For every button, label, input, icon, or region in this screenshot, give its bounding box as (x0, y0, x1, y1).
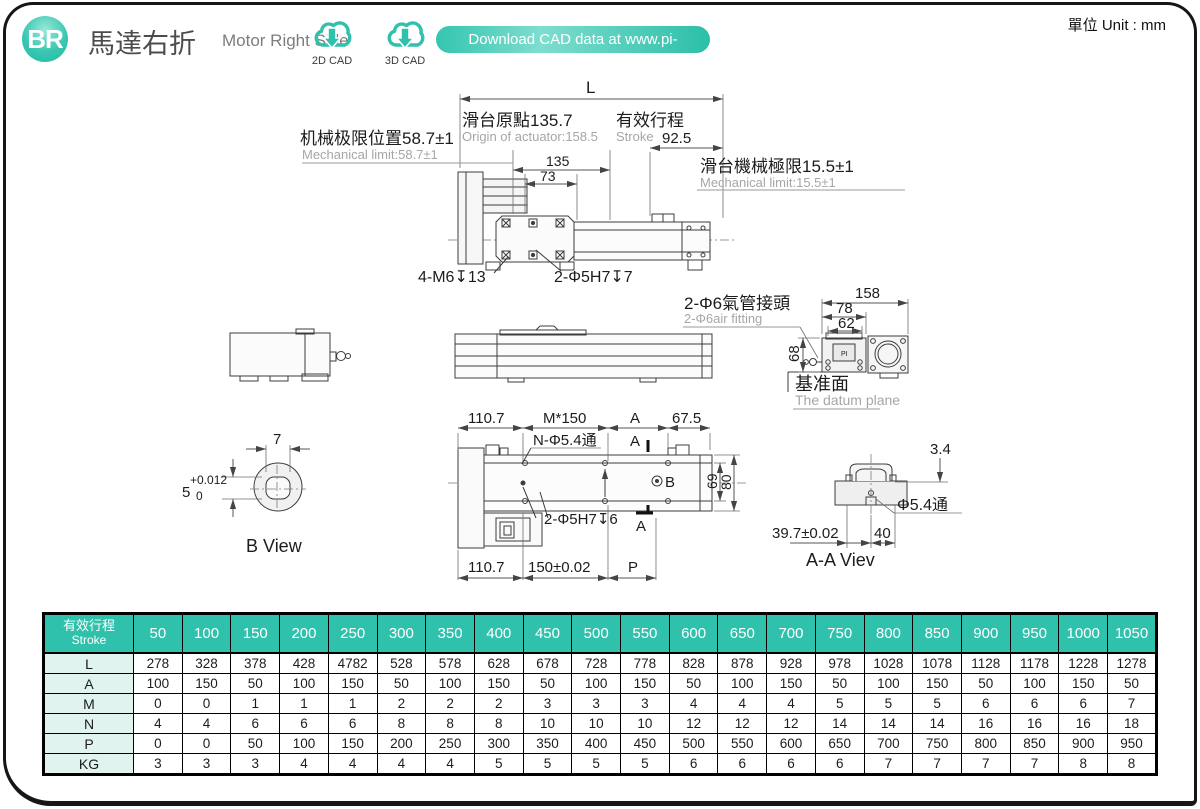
mech-limit-right-en: Mechanical limit:15.5±1 (700, 175, 836, 190)
dim-110-7-bottom: 110.7 (468, 559, 504, 576)
table-cell: 1228 (1059, 653, 1108, 674)
stroke-header-cell: 500 (572, 614, 621, 654)
dim-67-5: 67.5 (672, 410, 701, 427)
table-cell: 700 (864, 734, 913, 754)
b-view-drawing (250, 463, 306, 511)
table-cell: 12 (718, 714, 767, 734)
stroke-header-title: 有效行程 Stroke (44, 614, 134, 654)
table-cell: 4 (718, 694, 767, 714)
table-cell: 2 (474, 694, 523, 714)
dim-150-tol: 150±0.02 (528, 559, 590, 576)
table-cell: 628 (474, 653, 523, 674)
table-row: N4466688810101012121214141416161618 (44, 714, 1157, 734)
dim-135: 135 (546, 153, 570, 169)
table-row: A100150501001505010015050100150501001505… (44, 674, 1157, 694)
table-cell: 100 (1010, 674, 1059, 694)
stroke-header-cell: 450 (523, 614, 572, 654)
table-cell: 150 (621, 674, 670, 694)
table-cell: 10 (572, 714, 621, 734)
table-cell: 50 (1108, 674, 1157, 694)
table-cell: 950 (1108, 734, 1157, 754)
bottom-view-drawing (448, 445, 748, 548)
table-cell: 428 (280, 653, 329, 674)
stroke-header-cell: 50 (134, 614, 183, 654)
table-cell: 4 (377, 754, 426, 775)
pin-callout-7: 2-Φ5H7↧7 (554, 269, 633, 286)
table-cell: 10 (621, 714, 670, 734)
mech-limit-left-en: Mechanical limit:58.7±1 (302, 147, 438, 162)
stroke-header-cell: 1000 (1059, 614, 1108, 654)
table-cell: 1028 (864, 653, 913, 674)
table-cell: 1278 (1108, 653, 1157, 674)
table-cell: 3 (572, 694, 621, 714)
row-label-cell: KG (44, 754, 134, 775)
dim-P: P (628, 559, 638, 576)
table-cell: 278 (134, 653, 183, 674)
table-cell: 50 (231, 734, 280, 754)
table-cell: 7 (1108, 694, 1157, 714)
table-cell: 2 (426, 694, 475, 714)
stroke-header-cell: 200 (280, 614, 329, 654)
air-fitting-en: 2-Φ6air fitting (684, 311, 762, 326)
table-cell: 6 (815, 754, 864, 775)
table-cell: 100 (718, 674, 767, 694)
table-cell: 5 (815, 694, 864, 714)
section-a-bottom: A (636, 518, 646, 535)
table-cell: 0 (134, 694, 183, 714)
stroke-header-cell: 950 (1010, 614, 1059, 654)
table-cell: 16 (1010, 714, 1059, 734)
stroke-label-en: Stroke (616, 129, 654, 144)
table-row: M001112223334445556667 (44, 694, 1157, 714)
stroke-header-cell: 350 (426, 614, 475, 654)
actuator-side-view-drawing (455, 326, 712, 382)
table-cell: 1128 (961, 653, 1010, 674)
table-cell: 1078 (913, 653, 962, 674)
dim-80: 80 (718, 474, 734, 490)
table-cell: 150 (913, 674, 962, 694)
table-cell: 5 (572, 754, 621, 775)
tol-upper: +0.012 (190, 473, 227, 487)
dim-73: 73 (540, 168, 556, 184)
datum-plane-en: The datum plane (795, 392, 900, 408)
dim-68: 68 (786, 345, 803, 362)
table-row: KG333444455556666777788 (44, 754, 1157, 775)
table-cell: 500 (669, 734, 718, 754)
table-cell: 4 (328, 754, 377, 775)
table-header-row: 有效行程 Stroke 5010015020025030035040045050… (44, 614, 1157, 654)
table-cell: 150 (182, 674, 231, 694)
table-cell: 50 (231, 674, 280, 694)
table-cell: 6 (280, 714, 329, 734)
table-cell: 5 (474, 754, 523, 775)
phi-5-4-callout: Φ5.4通 (897, 496, 948, 514)
stroke-header-cell: 100 (182, 614, 231, 654)
table-cell: 3 (182, 754, 231, 775)
dim-62: 62 (838, 315, 855, 332)
table-cell: 650 (815, 734, 864, 754)
table-cell: 728 (572, 653, 621, 674)
stroke-header-cell: 650 (718, 614, 767, 654)
table-cell: 50 (377, 674, 426, 694)
table-cell: 578 (426, 653, 475, 674)
table-cell: 16 (1059, 714, 1108, 734)
table-cell: 4 (669, 694, 718, 714)
tol-lower: 0 (196, 489, 203, 503)
table-cell: 10 (523, 714, 572, 734)
table-cell: 6 (669, 754, 718, 775)
table-cell: 12 (767, 714, 816, 734)
dim-7: 7 (273, 431, 281, 448)
stroke-header-cell: 1050 (1108, 614, 1157, 654)
table-cell: 8 (1059, 754, 1108, 775)
table-cell: 878 (718, 653, 767, 674)
stroke-header-cell: 850 (913, 614, 962, 654)
row-label-cell: P (44, 734, 134, 754)
table-cell: 778 (621, 653, 670, 674)
stroke-header-en: Stroke (45, 634, 133, 648)
table-cell: 100 (280, 734, 329, 754)
stroke-header-cell: 550 (621, 614, 670, 654)
aa-view-caption: A-A Viev (806, 550, 875, 570)
table-cell: 1 (280, 694, 329, 714)
table-cell: 900 (1059, 734, 1108, 754)
table-cell: 8 (377, 714, 426, 734)
stroke-header-cell: 800 (864, 614, 913, 654)
table-cell: 4 (767, 694, 816, 714)
table-cell: 150 (1059, 674, 1108, 694)
table-cell: 300 (474, 734, 523, 754)
table-cell: 928 (767, 653, 816, 674)
table-cell: 550 (718, 734, 767, 754)
table-cell: 6 (767, 754, 816, 775)
table-cell: 850 (1010, 734, 1059, 754)
table-cell: 6 (718, 754, 767, 775)
table-cell: 7 (913, 754, 962, 775)
mech-limit-left-zh: 机械极限位置58.7±1 (300, 129, 454, 148)
table-cell: 6 (1059, 694, 1108, 714)
table-cell: 14 (815, 714, 864, 734)
table-cell: 3 (231, 754, 280, 775)
origin-label-zh: 滑台原點135.7 (462, 111, 573, 130)
table-cell: 378 (231, 653, 280, 674)
pin-callout-6: 2-Φ5H7↧6 (544, 511, 618, 528)
table-cell: 1 (328, 694, 377, 714)
table-cell: 7 (1010, 754, 1059, 775)
stroke-header-cell: 250 (328, 614, 377, 654)
table-cell: 150 (767, 674, 816, 694)
table-cell: 200 (377, 734, 426, 754)
table-cell: 18 (1108, 714, 1157, 734)
table-cell: 5 (864, 694, 913, 714)
table-cell: 50 (961, 674, 1010, 694)
table-cell: 450 (621, 734, 670, 754)
dim-158: 158 (855, 285, 880, 302)
row-label-cell: N (44, 714, 134, 734)
table-cell: 6 (1010, 694, 1059, 714)
table-cell: 12 (669, 714, 718, 734)
table-cell: 150 (328, 674, 377, 694)
holes-callout: N-Φ5.4通 (533, 432, 597, 449)
table-cell: 5 (523, 754, 572, 775)
table-cell: 7 (864, 754, 913, 775)
row-label-cell: L (44, 653, 134, 674)
dim-40: 40 (874, 525, 891, 542)
motor-side-view-drawing (230, 329, 351, 381)
dim-L: L (586, 78, 595, 97)
table-cell: 5 (913, 694, 962, 714)
origin-label-en: Origin of actuator:158.5 (462, 129, 598, 144)
table-cell: 400 (572, 734, 621, 754)
table-cell: 328 (182, 653, 231, 674)
dim-A: A (630, 410, 640, 427)
table-cell: 4782 (328, 653, 377, 674)
table-cell: 4 (182, 714, 231, 734)
table-cell: 16 (961, 714, 1010, 734)
table-cell: 50 (669, 674, 718, 694)
stroke-header-cell: 150 (231, 614, 280, 654)
table-cell: 8 (426, 714, 475, 734)
table-cell: 50 (815, 674, 864, 694)
top-view-drawing (448, 172, 734, 273)
table-cell: 350 (523, 734, 572, 754)
table-cell: 8 (474, 714, 523, 734)
table-cell: 250 (426, 734, 475, 754)
table-cell: 4 (280, 754, 329, 775)
table-row: P005010015020025030035040045050055060065… (44, 734, 1157, 754)
dim-m150: M*150 (543, 410, 586, 427)
table-cell: 3 (134, 754, 183, 775)
table-cell: 800 (961, 734, 1010, 754)
table-cell: 150 (328, 734, 377, 754)
table-cell: 100 (134, 674, 183, 694)
table-cell: 1 (231, 694, 280, 714)
dim-110-7-top: 110.7 (468, 410, 504, 427)
row-label-cell: A (44, 674, 134, 694)
mech-limit-right-zh: 滑台機械極限15.5±1 (700, 157, 854, 176)
stroke-header-cell: 300 (377, 614, 426, 654)
table-cell: 3 (523, 694, 572, 714)
table-cell: 4 (426, 754, 475, 775)
stroke-header-zh: 有效行程 (45, 619, 133, 634)
table-row: L278328378428478252857862867872877882887… (44, 653, 1157, 674)
table-cell: 528 (377, 653, 426, 674)
section-a-top: A (630, 433, 640, 450)
table-cell: 100 (572, 674, 621, 694)
table-cell: 828 (669, 653, 718, 674)
table-cell: 6 (328, 714, 377, 734)
table-cell: 2 (377, 694, 426, 714)
stroke-spec-table: 有效行程 Stroke 5010015020025030035040045050… (42, 612, 1158, 776)
table-cell: 7 (961, 754, 1010, 775)
stroke-header-cell: 750 (815, 614, 864, 654)
row-label-cell: M (44, 694, 134, 714)
table-cell: 4 (134, 714, 183, 734)
table-cell: 678 (523, 653, 572, 674)
stroke-header-cell: 700 (767, 614, 816, 654)
stroke-header-cell: 900 (961, 614, 1010, 654)
table-cell: 0 (182, 694, 231, 714)
table-cell: 6 (231, 714, 280, 734)
table-cell: 100 (426, 674, 475, 694)
b-view-marker: B (665, 474, 675, 491)
table-cell: 600 (767, 734, 816, 754)
datum-plane-zh: 基准面 (795, 374, 849, 394)
dim-92-5: 92.5 (662, 130, 691, 147)
table-cell: 0 (182, 734, 231, 754)
bolt-callout: 4-M6↧13 (418, 269, 486, 286)
stroke-label-zh: 有效行程 (616, 111, 684, 130)
stroke-header-cell: 400 (474, 614, 523, 654)
table-cell: 100 (864, 674, 913, 694)
dim-3-4: 3.4 (930, 441, 951, 458)
table-cell: 0 (134, 734, 183, 754)
table-cell: 8 (1108, 754, 1157, 775)
table-cell: 1178 (1010, 653, 1059, 674)
table-cell: 100 (280, 674, 329, 694)
table-cell: 14 (864, 714, 913, 734)
table-cell: 14 (913, 714, 962, 734)
b-view-caption: B View (246, 536, 303, 556)
table-cell: 3 (621, 694, 670, 714)
dim-39-7: 39.7±0.02 (772, 525, 839, 542)
pi-mark: PI (841, 351, 848, 358)
table-cell: 6 (961, 694, 1010, 714)
table-cell: 978 (815, 653, 864, 674)
table-cell: 50 (523, 674, 572, 694)
table-cell: 5 (621, 754, 670, 775)
table-cell: 750 (913, 734, 962, 754)
table-cell: 150 (474, 674, 523, 694)
stroke-header-cell: 600 (669, 614, 718, 654)
